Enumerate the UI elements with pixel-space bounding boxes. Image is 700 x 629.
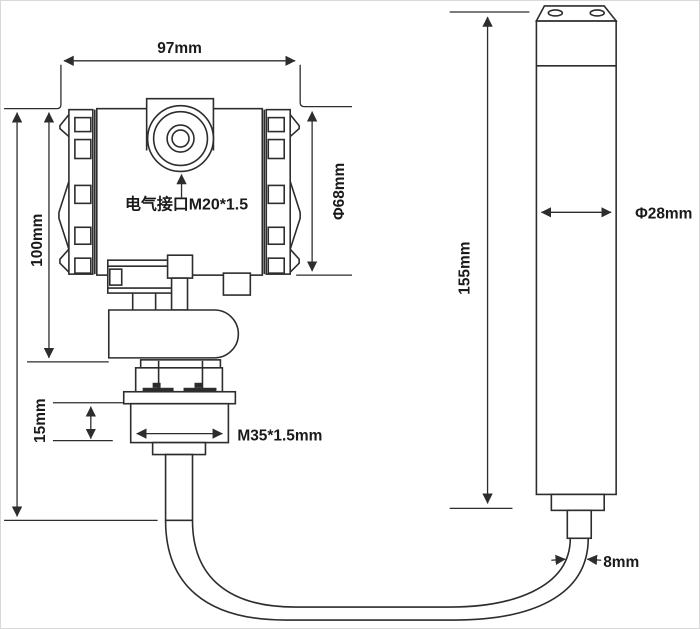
center-post-block — [168, 255, 193, 278]
electrical-connector-circles — [148, 106, 214, 172]
probe-cable-neck — [567, 510, 591, 538]
left-end-cap — [59, 110, 95, 274]
head-width-label: 97mm — [157, 40, 202, 57]
sensor-capsule — [109, 310, 239, 358]
head-height-label: 100mm — [29, 214, 46, 267]
transmitter-head — [59, 99, 300, 521]
sensor-probe — [536, 6, 616, 538]
thread-spec-label: M35*1.5mm — [237, 428, 322, 445]
head-diameter-label: Φ68mm — [331, 163, 348, 220]
right-step-block — [223, 273, 250, 295]
cable-diameter-label: 8mm — [603, 554, 639, 571]
dimension-probe-length: 155mm — [450, 12, 530, 508]
process-connection — [124, 360, 236, 520]
probe-top-hole-right — [590, 10, 604, 16]
flange-plate — [124, 392, 236, 404]
technical-drawing-canvas: 97mm 100mm 15mm Φ68mm M35*1.5mm 155mm — [0, 0, 700, 629]
electrical-port-label: 电气接口M20*1.5 — [125, 194, 248, 213]
probe-diameter-label: Φ28mm — [635, 205, 692, 222]
transmitter-outline-drawing: 97mm 100mm 15mm Φ68mm M35*1.5mm 155mm — [1, 1, 699, 628]
dimension-head-diameter: Φ68mm — [296, 112, 352, 275]
cable-gland-stem — [166, 455, 193, 521]
nut-height-label: 15mm — [32, 398, 49, 443]
probe-top-hole-left — [548, 10, 562, 16]
probe-body — [536, 21, 616, 494]
dimension-nut-height: 15mm — [32, 398, 124, 443]
thread-nut — [131, 404, 229, 443]
right-end-cap — [264, 110, 300, 274]
connection-cable — [166, 520, 589, 620]
probe-length-label: 155mm — [457, 242, 474, 295]
